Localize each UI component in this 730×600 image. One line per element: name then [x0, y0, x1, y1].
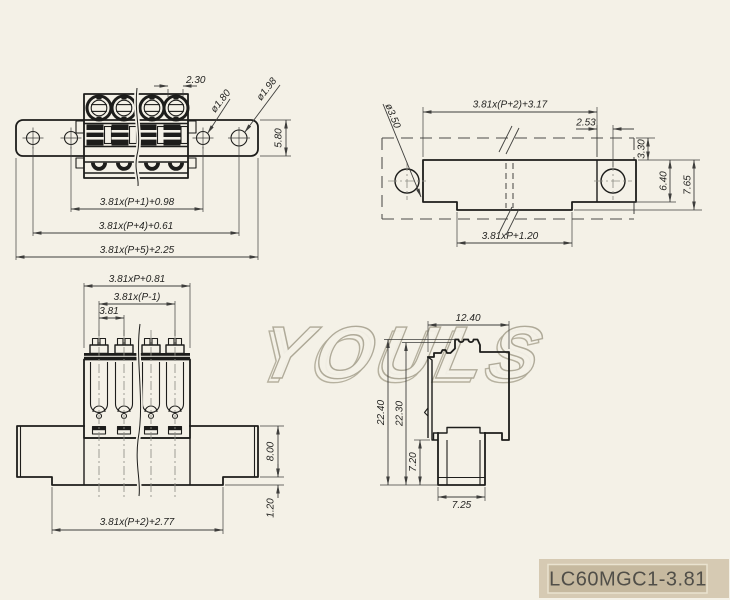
dim-hole-dia: ø3.50: [382, 102, 421, 197]
dim-label-total-height: 7.65: [683, 175, 694, 195]
dim-label-side-top-width: 12.40: [455, 313, 480, 324]
dim-hole-small: ø1.80: [208, 88, 234, 134]
dim-label-nose-height: 7.20: [408, 452, 419, 472]
dim-label-nose-width: 7.25: [452, 500, 472, 511]
view-footprint: 3.81x(P+2)+3.17 2.53 ø3.50 3.30 6.40 7.6…: [382, 100, 702, 248]
dim-label-span-inner: 3.81x(P+1)+0.98: [100, 197, 175, 208]
drawing-canvas: YOULS YOULS: [0, 0, 730, 600]
dim-wing-height: 8.00: [260, 426, 284, 477]
break-line-top-view: [136, 88, 139, 186]
dim-label-hole-offset: 2.53: [575, 118, 596, 129]
view-top-flange: 2.30 ø1.80 ø1.98 5.80 3.81x(P+1)+0.98 3.…: [16, 75, 291, 260]
dim-label-footprint-span-top: 3.81x(P+2)+3.17: [473, 100, 548, 111]
dim-label-footprint-span-bottom: 3.81xP+1.20: [482, 231, 539, 242]
part-number-plate: LC60MGC1-3.81: [539, 559, 729, 598]
dim-footprint-span-top: 3.81x(P+2)+3.17: [423, 100, 597, 158]
dim-label-body-height: 6.40: [659, 171, 670, 191]
dim-label-hole-small: ø1.80: [209, 88, 234, 115]
dim-nose-width: 7.25: [438, 487, 485, 511]
technical-drawing: YOULS YOULS: [0, 0, 730, 600]
dim-label-hole-large: ø1.98: [255, 76, 280, 103]
dim-bar-height: 5.80: [260, 120, 291, 156]
dim-label-hole-dia: ø3.50: [382, 102, 402, 130]
dim-edge-margin: 3.30: [636, 138, 700, 160]
dim-label-side-total-height: 22.40: [376, 400, 387, 426]
dim-label-side-body-height: 22.30: [395, 401, 406, 427]
view-front: 3.81xP+0.81 3.81x(P-1) 3.81 8.00 1.20 3.…: [17, 274, 284, 534]
dim-label-bar-height: 5.80: [274, 128, 285, 148]
dim-hole-large: ø1.98: [245, 76, 280, 133]
dim-label-edge-margin: 3.30: [637, 139, 648, 159]
dim-label-front-span-body: 3.81xP+0.81: [109, 274, 165, 285]
dim-label-span-holes: 3.81x(P+4)+0.61: [99, 221, 174, 232]
break-line-front-view: [137, 324, 140, 496]
dim-label-slot-width: 2.30: [185, 75, 206, 86]
dim-label-pitch: 3.81: [99, 306, 118, 317]
dim-label-wing-height: 8.00: [266, 441, 277, 461]
dim-label-skirt-height: 1.20: [266, 498, 277, 518]
footprint-plate: [423, 160, 636, 210]
part-number: LC60MGC1-3.81: [549, 569, 707, 591]
dim-label-front-span-total: 3.81x(P+2)+2.77: [100, 517, 175, 528]
dim-pitch: 3.81: [99, 306, 124, 336]
footprint-holes: [388, 162, 632, 200]
dim-label-front-span-poles: 3.81x(P-1): [114, 292, 161, 303]
dim-nose-height: 7.20: [408, 440, 430, 485]
dim-label-span-total: 3.81x(P+5)+2.25: [100, 245, 175, 256]
